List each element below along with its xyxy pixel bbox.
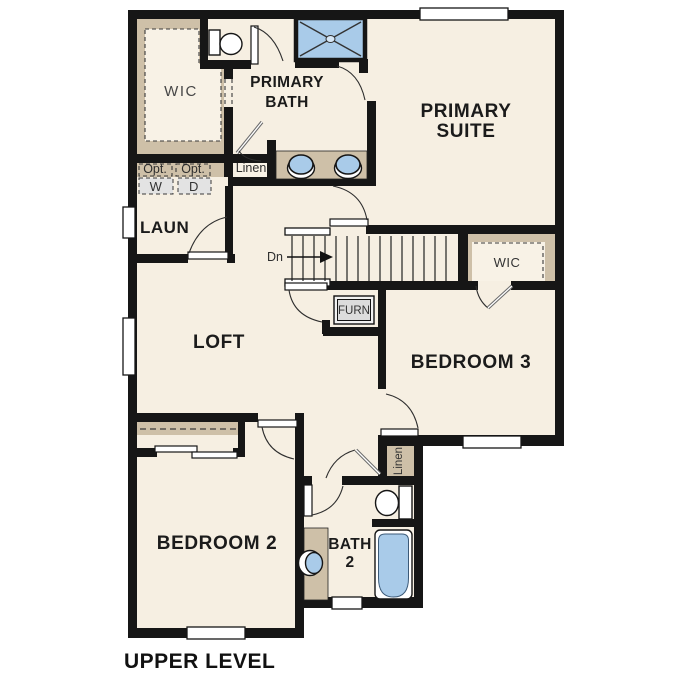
wall-segment — [511, 281, 555, 290]
wall-segment — [323, 327, 386, 336]
wall-segment — [458, 225, 468, 290]
bedroom2-closet-shelf — [137, 421, 240, 435]
primary-bath-label-line2: BATH — [265, 94, 309, 111]
wall-segment — [327, 281, 468, 290]
wall-segment — [224, 107, 233, 177]
wall-segment — [342, 476, 423, 485]
bath2-label-line2: 2 — [345, 554, 354, 571]
dryer-opt-label: Opt. — [181, 162, 205, 176]
bathtub-icon — [379, 534, 409, 597]
washer-label: W — [150, 179, 163, 194]
wall-segment — [137, 448, 157, 457]
dryer-label: D — [189, 179, 199, 194]
floor-plan-svg: WIC PRIMARY BATH PRIMARY SUITE Opt. Opt.… — [0, 0, 687, 687]
window — [187, 627, 245, 639]
toilet-icon — [376, 491, 399, 516]
primary-bath-label-line1: PRIMARY — [250, 74, 324, 91]
wall-segment — [367, 101, 376, 179]
toilet-icon — [399, 486, 412, 519]
door-leaf — [381, 429, 418, 436]
window — [123, 318, 135, 375]
door-leaf — [285, 283, 327, 290]
sink-icon — [336, 155, 360, 174]
bedroom2-label: BEDROOM 2 — [157, 533, 277, 554]
sink-icon — [289, 155, 313, 174]
sink-icon — [306, 553, 323, 574]
window — [332, 597, 362, 609]
hall-linen-label: Linen — [236, 161, 267, 175]
wall-segment — [372, 519, 423, 527]
primary-suite-label-line2: SUITE — [437, 121, 496, 142]
laundry-label: LAUN — [140, 218, 189, 237]
window — [420, 8, 508, 20]
stairs-down-label: Dn — [267, 250, 283, 264]
wall-segment — [267, 140, 276, 180]
wall-segment — [378, 281, 386, 389]
bypass-door-leaf — [192, 452, 237, 458]
loft-label: LOFT — [193, 332, 245, 353]
wall-segment — [225, 186, 233, 254]
window — [463, 436, 521, 448]
door-leaf — [330, 219, 368, 226]
wall-segment — [200, 19, 208, 64]
shower-drain-icon — [326, 36, 335, 43]
toilet-icon — [220, 34, 242, 55]
door-leaf — [251, 26, 258, 64]
door-leaf — [304, 485, 312, 516]
floor-plan-page: WIC PRIMARY BATH PRIMARY SUITE Opt. Opt.… — [0, 0, 687, 687]
toilet-icon — [209, 30, 220, 55]
wall-segment — [300, 476, 312, 485]
stair-rail — [285, 228, 330, 235]
bath2-label-line1: BATH — [328, 536, 372, 553]
plan-title: UPPER LEVEL — [124, 650, 275, 673]
furnace-label: FURN — [338, 305, 370, 317]
bedroom3-label: BEDROOM 3 — [411, 352, 531, 373]
bath-linen-label: Linen — [393, 447, 405, 475]
wall-segment — [224, 60, 233, 79]
window — [123, 207, 135, 238]
hall-wic-label: WIC — [494, 255, 521, 270]
door-leaf — [258, 420, 297, 427]
primary-suite-label-line1: PRIMARY — [420, 101, 511, 122]
washer-opt-label: Opt. — [143, 162, 167, 176]
wall-segment — [128, 254, 188, 263]
door-leaf — [188, 252, 228, 259]
primary-wic-label: WIC — [164, 83, 198, 100]
bypass-door-leaf — [155, 446, 197, 452]
